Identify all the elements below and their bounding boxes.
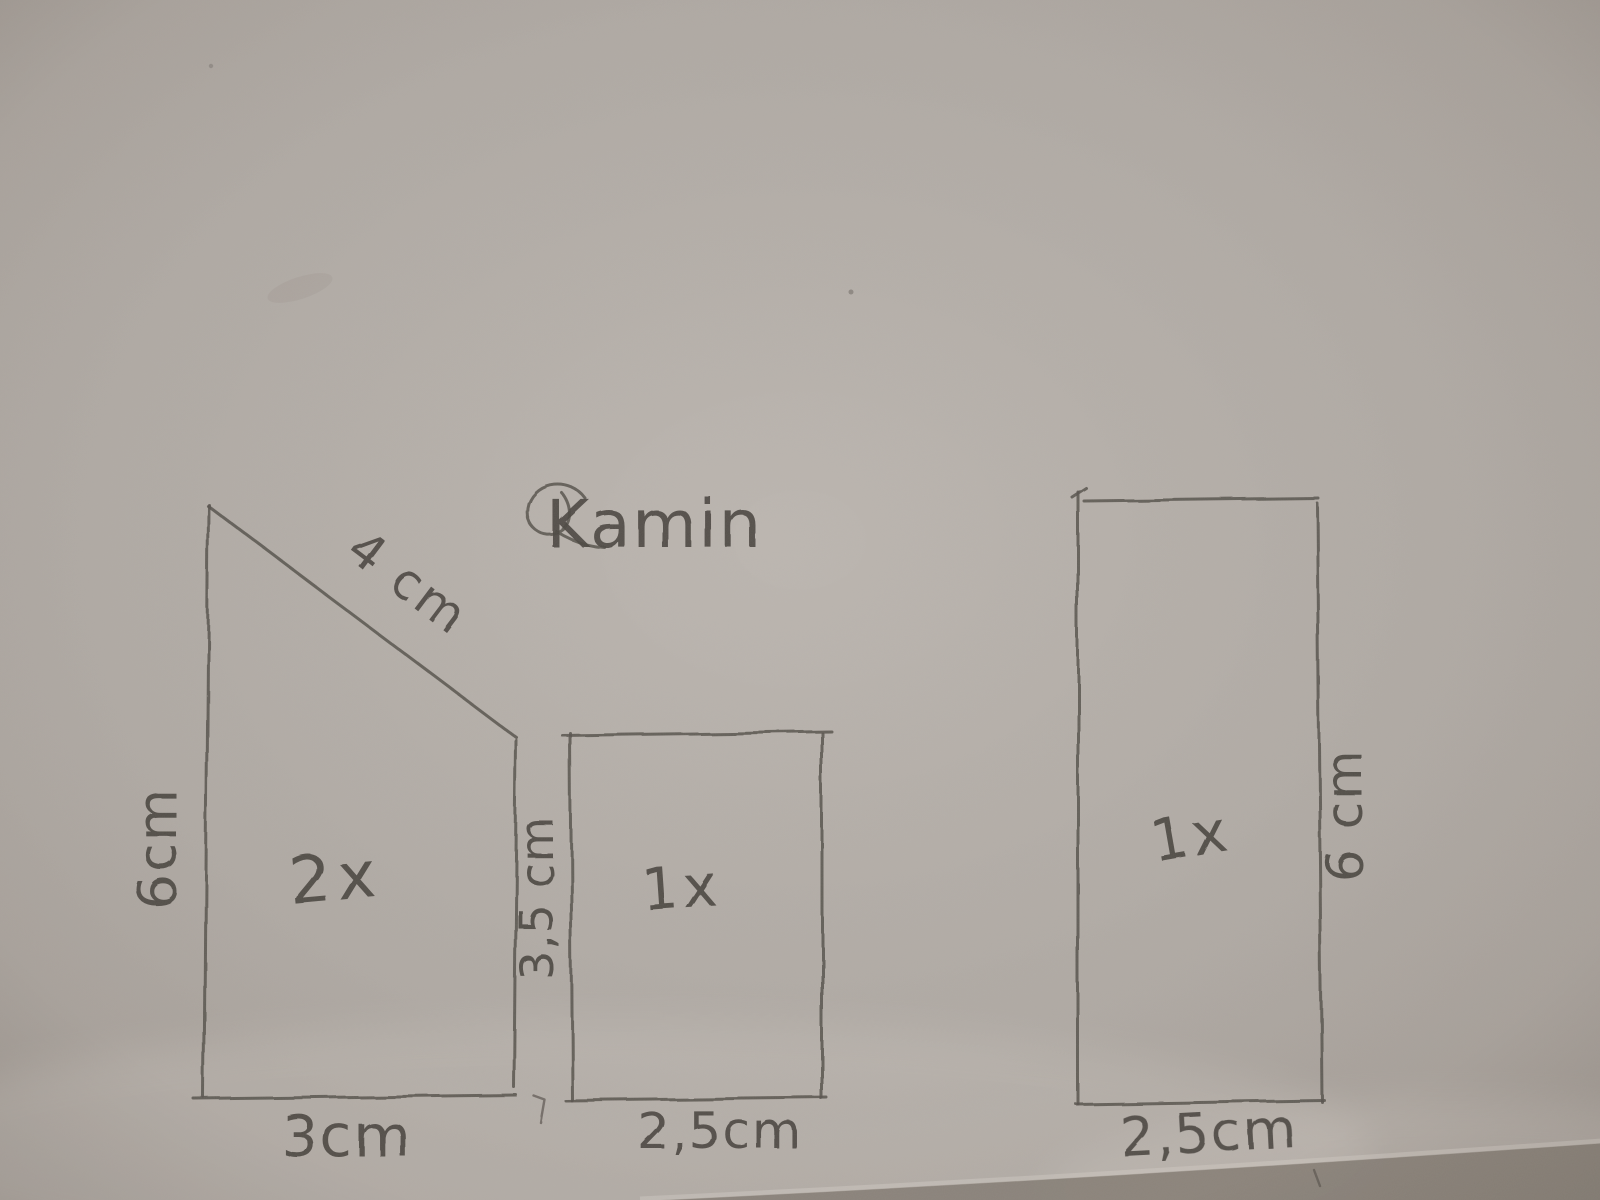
- photo-of-paper-sketch: Kamin 6cm 4 cm 3cm 2x 3,5 cm 2,5cm 1x 6 …: [0, 0, 1600, 1200]
- photo-vignette: [0, 0, 1600, 1200]
- kamin-sketch: Kamin 6cm 4 cm 3cm 2x 3,5 cm 2,5cm 1x 6 …: [0, 0, 1600, 1200]
